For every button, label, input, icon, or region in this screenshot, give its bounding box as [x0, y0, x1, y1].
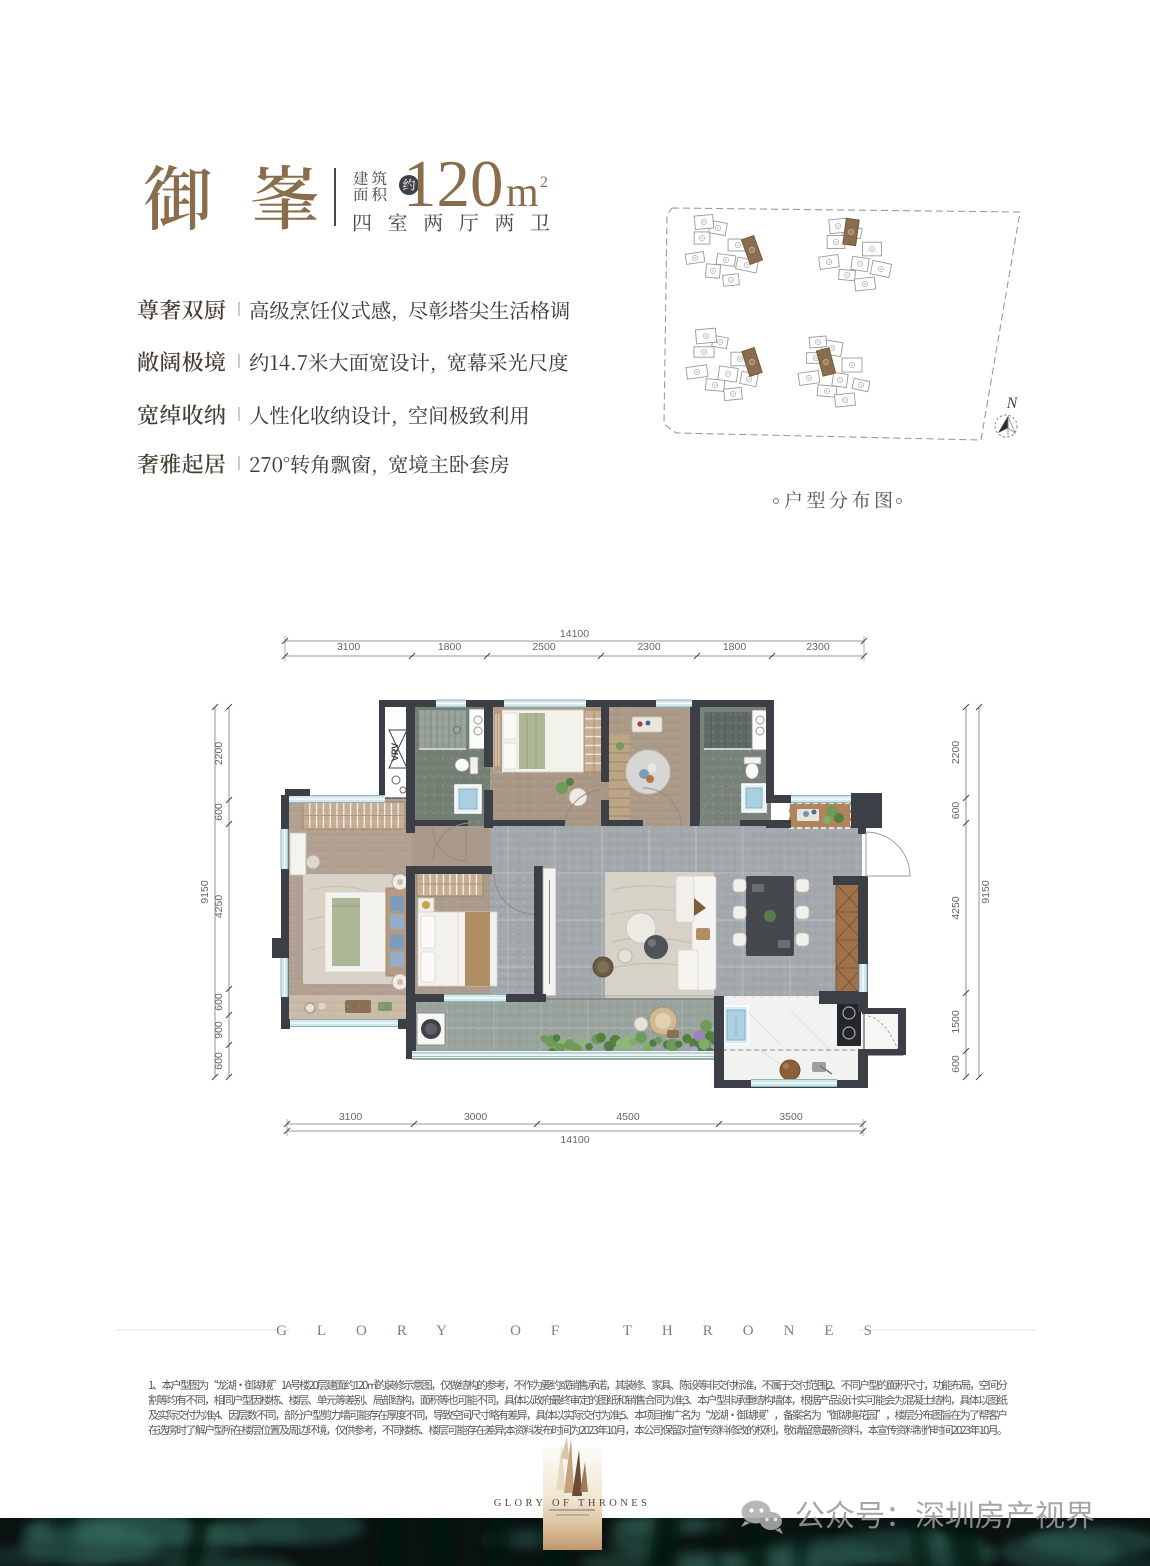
svg-text:1800: 1800: [438, 641, 462, 653]
svg-text:GLORY OF THRONES: GLORY OF THRONES: [494, 1498, 651, 1509]
svg-text:GLORY OF THRONES: GLORY OF THRONES: [276, 1323, 902, 1339]
svg-text:m: m: [506, 170, 539, 216]
svg-text:2: 2: [540, 174, 548, 191]
svg-text:4250: 4250: [950, 896, 962, 920]
svg-text:120: 120: [403, 147, 504, 221]
svg-text:1800: 1800: [723, 641, 747, 653]
svg-text:2200: 2200: [950, 741, 962, 765]
svg-text:3100: 3100: [339, 1111, 363, 1123]
svg-text:2300: 2300: [806, 641, 830, 653]
svg-text:14100: 14100: [560, 628, 589, 640]
svg-text:VRV: VRV: [390, 743, 400, 761]
svg-text:N: N: [1006, 395, 1019, 412]
svg-text:3000: 3000: [464, 1111, 488, 1123]
svg-text:14100: 14100: [560, 1134, 589, 1146]
svg-text:4500: 4500: [616, 1111, 640, 1123]
svg-text:600: 600: [950, 802, 962, 820]
svg-text:3500: 3500: [779, 1111, 803, 1123]
svg-text:600: 600: [950, 1055, 962, 1073]
svg-text:9150: 9150: [199, 880, 211, 904]
svg-text:2300: 2300: [637, 641, 661, 653]
svg-text:3100: 3100: [337, 641, 361, 653]
svg-text:1500: 1500: [950, 1010, 962, 1034]
svg-text:2500: 2500: [532, 641, 556, 653]
svg-text:9150: 9150: [980, 880, 992, 904]
